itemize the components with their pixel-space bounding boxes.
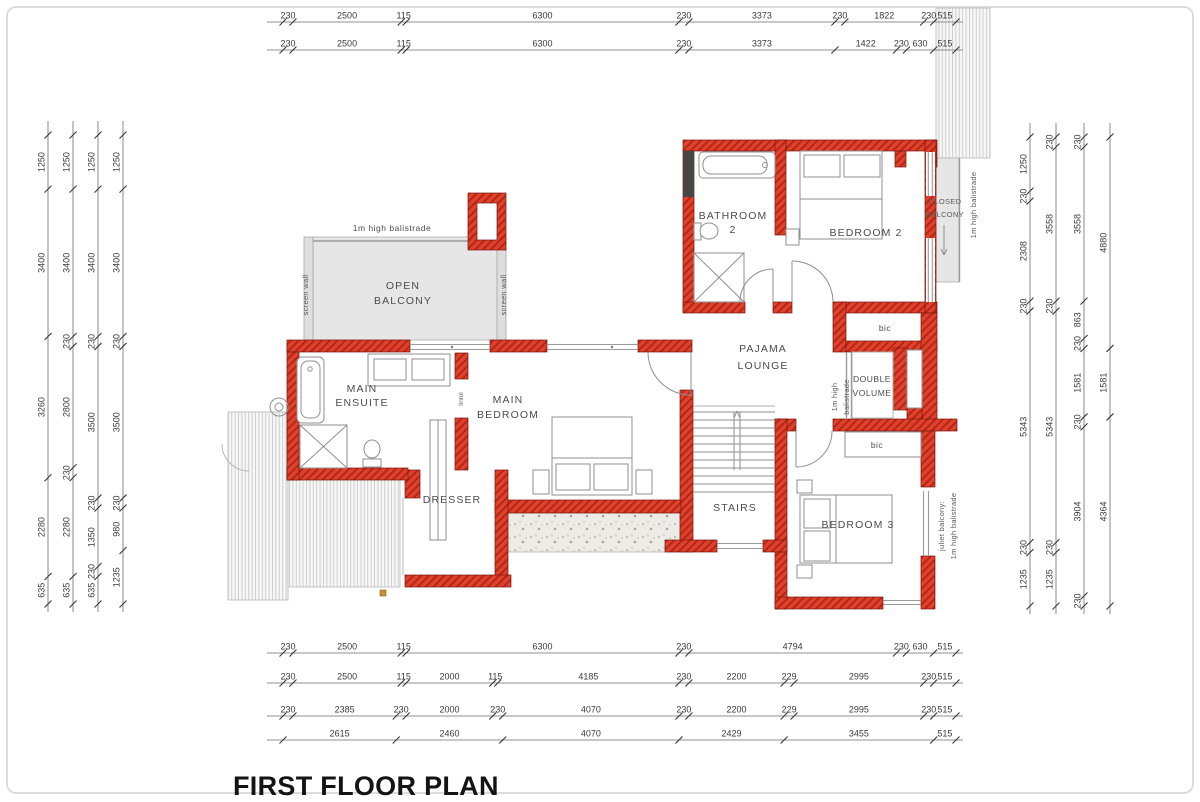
- dim-label: 4070: [581, 705, 601, 715]
- dim-label: 630: [913, 39, 928, 49]
- roof-left-lower: [288, 480, 400, 587]
- dim-label: 5343: [1045, 417, 1055, 437]
- bedroom3-door-arc: [796, 431, 832, 467]
- dim-label: 635: [87, 583, 97, 598]
- svg-text:BEDROOM: BEDROOM: [477, 409, 539, 421]
- dim-label: 4364: [1099, 501, 1109, 521]
- dim-label: 5343: [1019, 417, 1029, 437]
- bedroom2-door-arc: [792, 261, 833, 302]
- toilet-bathroom2: [694, 223, 718, 240]
- dim-label: 230: [1019, 299, 1029, 314]
- svg-text:BALCONY: BALCONY: [926, 210, 964, 219]
- vanity-ensuite: [368, 354, 450, 386]
- dim-label: 230: [1019, 189, 1029, 204]
- label-bic-bedroom3: bic: [871, 440, 884, 450]
- dim-label: 3373: [752, 11, 772, 21]
- svg-text:BALCONY: BALCONY: [374, 295, 432, 307]
- dim-label: 1250: [1019, 154, 1029, 174]
- dim-label: 630: [913, 642, 928, 652]
- dim-label: 1235: [1019, 569, 1029, 589]
- label-screen-wall-left: screen wall: [301, 275, 310, 316]
- label-juliet-balcony: juliet balcony:: [937, 501, 946, 552]
- label-main-ensuite: MAIN: [347, 383, 378, 395]
- dim-label: 1350: [87, 527, 97, 547]
- label-closed-balcony: CLOSED: [929, 197, 962, 206]
- double-volume-void: [852, 352, 893, 418]
- dim-label: 3373: [752, 39, 772, 49]
- dim-label: 2200: [727, 672, 747, 682]
- label-open-balcony: OPEN: [386, 280, 420, 292]
- dim-label: 2995: [849, 672, 869, 682]
- dim-label: 3904: [1073, 501, 1083, 521]
- dim-label: 4185: [578, 672, 598, 682]
- dim-label: 3400: [112, 253, 122, 273]
- dim-label: 3558: [1073, 214, 1083, 234]
- dim-label: 515: [937, 642, 952, 652]
- dim-label: 230: [1073, 594, 1083, 609]
- label-pajama-lounge: PAJAMA: [739, 343, 787, 355]
- dim-label: 230: [676, 642, 691, 652]
- dim-label: 2385: [335, 705, 355, 715]
- dim-label: 1422: [856, 39, 876, 49]
- dim-label: 2500: [337, 642, 357, 652]
- dim-label: 230: [1045, 540, 1055, 555]
- dim-label: 2800: [62, 397, 72, 417]
- dim-label: 230: [921, 705, 936, 715]
- dim-label: 230: [280, 39, 295, 49]
- label-lintol: lintol: [458, 392, 465, 406]
- dim-label: 3500: [87, 412, 97, 432]
- dim-label: 230: [112, 496, 122, 511]
- dim-label: 230: [87, 496, 97, 511]
- label-double-volume: DOUBLE: [853, 374, 891, 384]
- label-bic-bedroom2: bic: [879, 323, 892, 333]
- dim-label: 635: [62, 583, 72, 598]
- dim-label: 2500: [337, 11, 357, 21]
- dim-label: 3400: [62, 253, 72, 273]
- dim-label: 230: [1019, 540, 1029, 555]
- dim-label: 230: [921, 11, 936, 21]
- dim-label: 3455: [849, 729, 869, 739]
- chimney-flue: [477, 203, 497, 240]
- dim-label: 230: [490, 705, 505, 715]
- label-screen-wall-right: screen wall: [499, 275, 508, 316]
- dim-label: 3400: [37, 253, 47, 273]
- dim-label: 1250: [87, 152, 97, 172]
- dim-label: 2280: [62, 517, 72, 537]
- svg-text:VOLUME: VOLUME: [853, 388, 892, 398]
- dim-label: 4880: [1099, 233, 1109, 253]
- bathtub-bathroom2: [699, 152, 775, 178]
- dim-label: 230: [280, 642, 295, 652]
- dim-label: 229: [782, 672, 797, 682]
- dim-label: 980: [112, 522, 122, 537]
- dim-label: 230: [62, 334, 72, 349]
- dresser-unit: [430, 420, 446, 540]
- shower-bathroom2: [694, 253, 744, 302]
- dim-label: 2308: [1019, 241, 1029, 261]
- dim-label: 1581: [1099, 373, 1109, 393]
- dim-label: 2000: [439, 672, 459, 682]
- dim-label: 229: [782, 705, 797, 715]
- duct: [907, 350, 922, 408]
- dim-label: 4070: [581, 729, 601, 739]
- dim-label: 6300: [533, 642, 553, 652]
- dim-label: 2200: [727, 705, 747, 715]
- dim-label: 230: [112, 334, 122, 349]
- dim-label: 230: [676, 672, 691, 682]
- dim-label: 230: [676, 39, 691, 49]
- dim-label: 1250: [62, 152, 72, 172]
- label-balustrade-right: 1m high balistrade: [969, 172, 978, 239]
- dim-label: 2000: [439, 705, 459, 715]
- dim-label: 1250: [37, 152, 47, 172]
- dim-label: 2280: [37, 517, 47, 537]
- bathtub-ensuite: [297, 357, 324, 423]
- dim-label: 230: [1045, 134, 1055, 149]
- dim-label: 2500: [337, 672, 357, 682]
- dim-label: 230: [894, 642, 909, 652]
- dim-label: 230: [280, 11, 295, 21]
- label-bedroom2: BEDROOM 2: [830, 227, 903, 239]
- dim-label: 230: [894, 39, 909, 49]
- dim-label: 3558: [1045, 214, 1055, 234]
- bathroom2-door-arc: [740, 269, 773, 302]
- label-bathroom2: BATHROOM: [699, 210, 768, 222]
- label-dv-balustrade: 1m high: [830, 383, 839, 412]
- label-main-bedroom: MAIN: [493, 394, 524, 406]
- dim-label: 2460: [439, 729, 459, 739]
- dim-label: 230: [280, 705, 295, 715]
- dim-label: 230: [87, 564, 97, 579]
- dim-label: 1250: [112, 152, 122, 172]
- dim-label: 230: [1073, 336, 1083, 351]
- dim-label: 230: [280, 672, 295, 682]
- roof-top-right: [936, 8, 990, 158]
- dim-label: 230: [87, 334, 97, 349]
- dim-label: 230: [1073, 134, 1083, 149]
- floor-plan-drawing: BATHROOM 2 BEDROOM 2 CLOSED BALCONY 1m h…: [0, 0, 1200, 800]
- dark-window-bathroom2: [683, 151, 694, 197]
- dim-label: 230: [62, 465, 72, 480]
- dim-label: 2995: [849, 705, 869, 715]
- dim-label: 4794: [783, 642, 803, 652]
- screed-strip: [508, 513, 680, 552]
- dim-label: 515: [937, 39, 952, 49]
- dim-label: 2429: [722, 729, 742, 739]
- dim-label: 230: [832, 11, 847, 21]
- dim-label: 515: [937, 11, 952, 21]
- dim-label: 6300: [533, 39, 553, 49]
- dim-label: 1822: [874, 11, 894, 21]
- dim-label: 230: [1073, 414, 1083, 429]
- svg-text:balistrade: balistrade: [842, 379, 851, 415]
- label-bedroom3: BEDROOM 3: [822, 519, 895, 531]
- label-bathroom2-num: 2: [730, 224, 737, 236]
- dim-label: 230: [676, 11, 691, 21]
- closed-balcony-floor: [936, 158, 959, 282]
- dim-label: 230: [676, 705, 691, 715]
- label-dresser: DRESSER: [423, 494, 481, 506]
- dim-label: 863: [1073, 312, 1083, 327]
- dim-label: 1235: [1045, 569, 1055, 589]
- dim-label: 6300: [533, 11, 553, 21]
- main-bedroom-door-arc: [648, 352, 691, 395]
- dim-label: 230: [921, 672, 936, 682]
- dim-label: 230: [394, 705, 409, 715]
- bed-main-bedroom: [533, 417, 652, 495]
- staircase: [693, 411, 775, 492]
- svg-text:1m high balistrade: 1m high balistrade: [949, 493, 958, 560]
- dim-label: 230: [1045, 299, 1055, 314]
- dim-label: 515: [937, 729, 952, 739]
- dim-label: 2500: [337, 39, 357, 49]
- dim-label: 635: [37, 583, 47, 598]
- toilet-ensuite: [363, 440, 381, 467]
- label-stairs: STAIRS: [713, 502, 757, 514]
- dim-label: 2615: [330, 729, 350, 739]
- roof-marker: [380, 590, 386, 596]
- roof-left: [228, 412, 288, 600]
- shower-ensuite: [300, 425, 347, 468]
- dim-label: 1235: [112, 567, 122, 587]
- label-balustrade-open: 1m high balistrade: [353, 223, 431, 233]
- dim-label: 3260: [37, 397, 47, 417]
- drawing-title: FIRST FLOOR PLAN: [233, 771, 499, 802]
- svg-text:ENSUITE: ENSUITE: [335, 397, 388, 409]
- dim-label: 3400: [87, 253, 97, 273]
- dim-label: 1581: [1073, 373, 1083, 393]
- dim-label: 515: [937, 705, 952, 715]
- dim-label: 3500: [112, 412, 122, 432]
- dim-label: 515: [937, 672, 952, 682]
- svg-text:LOUNGE: LOUNGE: [738, 360, 789, 372]
